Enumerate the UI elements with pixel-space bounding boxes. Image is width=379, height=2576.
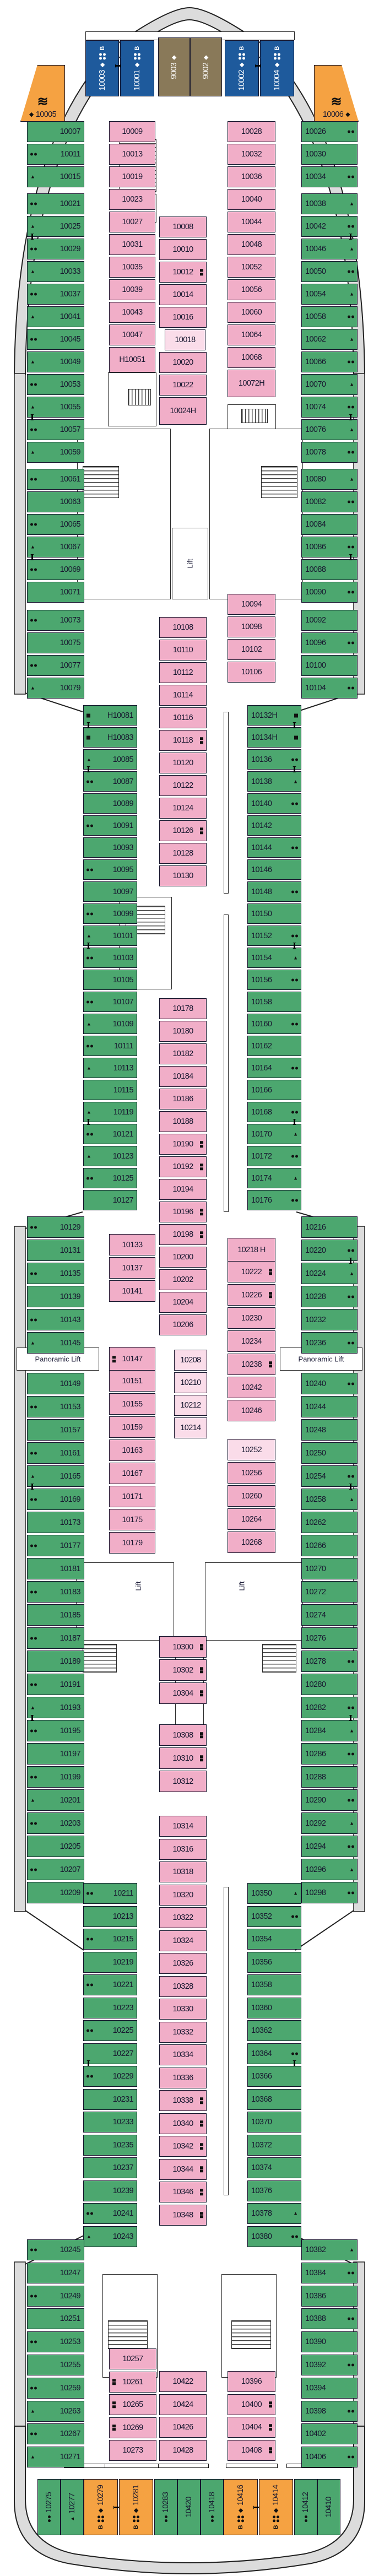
cabin-rotated-content: 10002◆B — [237, 46, 246, 91]
cabin-number: 10302 — [160, 1660, 206, 1680]
cabin-number: 9003 — [170, 62, 178, 79]
extra-berths-icon — [348, 591, 354, 594]
cabin-number: 10214 — [175, 1418, 207, 1438]
cabin-number: 10165 — [28, 1466, 84, 1486]
cabin-10109: 10109▲ — [83, 1014, 137, 1034]
cabin-10192: 10192 — [159, 1156, 207, 1177]
sofa-bed-icon: ▲ — [86, 757, 91, 762]
lift-label: Lift — [134, 1581, 143, 1590]
service-room — [77, 429, 171, 599]
cabin-symbols — [200, 2189, 203, 2195]
cabin-10209: 10209 — [27, 1882, 84, 1903]
cabin-10205: 10205 — [27, 1836, 84, 1857]
cabin-10288: 10288 — [301, 1766, 358, 1788]
cabin-10061: 10061 — [27, 469, 84, 490]
cabin-10178: 10178 — [159, 998, 207, 1019]
cabin-number: 10175 — [110, 1509, 155, 1530]
cabin-symbols — [348, 1845, 354, 1848]
diamond-icon: ◆ — [99, 63, 105, 67]
extra-berths-icon — [30, 569, 37, 571]
cabin-symbols — [200, 827, 203, 834]
cabin-10082: 10082 — [301, 491, 358, 512]
cabin-number: 10048 — [228, 235, 275, 255]
cabin-number: 10055 — [28, 397, 84, 417]
extra-berths-icon — [348, 361, 354, 364]
cabin-symbols — [30, 1226, 37, 1229]
cabin-symbols — [348, 1799, 354, 1801]
cabin-10216: 10216 — [301, 1216, 358, 1238]
accessible-cabin-icon — [86, 713, 90, 717]
cabin-symbols — [86, 1892, 93, 1895]
cabin-number: H10083 — [84, 728, 137, 747]
cabin-symbols — [200, 2143, 203, 2150]
extra-berths-icon — [348, 2271, 354, 2274]
cabin-number: 10030 — [302, 144, 357, 164]
cabin-10236: 10236 — [301, 1332, 358, 1354]
bunk-beds-icon — [200, 2189, 203, 2195]
cabin-number: 10044 — [228, 212, 275, 232]
cabin-number: 10112 — [160, 663, 206, 683]
cabin-rotated-content: 9002◆ — [202, 55, 210, 79]
cabin-symbols — [294, 735, 298, 739]
cabin-symbols: ▲ — [86, 1110, 91, 1114]
cabin-H10083: H10083 — [83, 727, 137, 748]
cabin-symbols — [348, 131, 354, 133]
sofa-bed-icon: ▲ — [349, 477, 354, 482]
cabin-10089: 10089 — [83, 793, 137, 814]
cabin-10022: 10022 — [159, 375, 207, 396]
cabin-10218H: 10218 H — [228, 1238, 275, 1262]
cabin-symbols: ▲ — [293, 1176, 298, 1181]
cabin-number: 10052 — [228, 257, 275, 277]
cabin-10103: 10103 — [83, 948, 137, 968]
cabin-10334: 10334 — [159, 2044, 207, 2065]
cabin-10281: B◆10281 — [119, 2479, 153, 2535]
cabin-10155: 10155 — [109, 1393, 155, 1415]
connecting-cabins-icon: I — [349, 554, 353, 562]
cabin-number: 10089 — [84, 794, 137, 813]
cabin-number: 10216 — [302, 1217, 357, 1237]
cabin-number: 10358 — [248, 1975, 301, 1995]
cabin-symbols — [86, 2075, 93, 2078]
cabin-10183: 10183 — [27, 1581, 84, 1603]
cabin-symbols: ▲ — [30, 2455, 35, 2460]
cabin-number: 10012 — [160, 262, 206, 282]
cabin-number: 10274 — [302, 1605, 357, 1625]
cabin-10170: 10170▲ — [247, 1124, 301, 1144]
cabin-number: 10031 — [110, 235, 155, 255]
cabin-number: 10046 — [302, 239, 357, 259]
cabin-symbols — [200, 1690, 203, 1697]
cabin-number: 10330 — [160, 1999, 206, 2019]
cabin-number: 10119 — [84, 1102, 137, 1122]
sofa-bed-icon: ▲ — [30, 269, 35, 274]
sofa-bed-icon: ▲ — [293, 955, 298, 960]
cabin-10204: 10204 — [159, 1292, 207, 1313]
extra-berths-icon — [348, 406, 354, 409]
cabin-10338: 10338 — [159, 2090, 207, 2111]
cabin-10235: 10235 — [83, 2135, 137, 2156]
cabin-symbols: ▲ — [349, 477, 354, 482]
cabin-H10081: H10081 — [83, 705, 137, 726]
cabin-10200: 10200 — [159, 1247, 207, 1268]
cabin-number: 10010 — [160, 240, 206, 259]
cabin-symbols: ▲ — [30, 175, 35, 180]
cabin-10402: 10402 — [301, 2423, 358, 2444]
cabin-10332: 10332 — [159, 2022, 207, 2043]
cabin-number: 10239 — [84, 2181, 137, 2201]
cabin-10160: 10160 — [247, 1014, 301, 1034]
cabin-number: 10080 — [302, 469, 357, 489]
cabin-symbols — [86, 824, 93, 827]
cabin-10122: 10122 — [159, 775, 207, 796]
extra-berths-icon — [86, 1938, 93, 1941]
cabin-10145: 10145▲ — [27, 1332, 84, 1354]
cabin-number: 10328 — [160, 1977, 206, 1996]
cabin-symbols — [30, 203, 37, 205]
cabin-number: 10150 — [248, 904, 301, 923]
extra-berths-icon — [348, 131, 354, 133]
cabin-10237: 10237 — [83, 2157, 137, 2178]
bunk-beds-icon — [200, 1690, 203, 1697]
extra-berths-icon — [30, 248, 37, 251]
cabin-symbols — [291, 978, 298, 981]
cabin-number: 10252 — [228, 1439, 275, 1460]
cabin-number: 10033 — [28, 262, 84, 282]
cabin-10038: 10038▲ — [301, 193, 358, 214]
cabin-10020: 10020 — [159, 352, 207, 373]
bunk-beds-icon — [200, 2143, 203, 2150]
cabin-number: 10016 — [160, 307, 206, 327]
four-berths-icon — [99, 53, 106, 60]
extra-berths-icon — [348, 1249, 354, 1252]
cabin-rotated-content: 10003◆B — [98, 46, 107, 91]
cabin-number: 10024H — [160, 398, 206, 424]
cabin-symbols — [200, 2212, 203, 2218]
bunk-beds-icon — [200, 2120, 203, 2127]
bunk-beds-icon — [200, 2166, 203, 2173]
cabin-10251: 10251 — [27, 2308, 84, 2329]
cabin-symbols — [86, 1133, 93, 1135]
cabin-number: 10072H — [228, 370, 275, 397]
extra-berths-icon — [348, 451, 354, 454]
cabin-number: 10218 H — [228, 1238, 275, 1262]
cabin-number: 10223 — [84, 1998, 137, 2018]
four-berths-icon — [239, 53, 245, 60]
cabin-number: 10131 — [28, 1240, 84, 1260]
cabin-10066: 10066 — [301, 351, 358, 372]
cabin-symbols — [30, 383, 37, 386]
cabin-10159: 10159 — [109, 1416, 155, 1438]
cabin-10125: 10125 — [83, 1168, 137, 1188]
cabin-10111: 10111 — [83, 1036, 137, 1056]
bunk-beds-icon — [200, 1141, 203, 1148]
cabin-rotated-content: 10001◆B — [133, 46, 142, 91]
cabin-number: 10035 — [110, 257, 155, 277]
sofa-bed-icon: ▲ — [349, 1821, 354, 1826]
cabin-number: 10123 — [84, 1146, 137, 1166]
cabin-number: 10113 — [84, 1058, 137, 1078]
cabin-number: 10300 — [160, 1637, 206, 1657]
cabin-number: 10206 — [160, 1315, 206, 1335]
cabin-symbols — [348, 1341, 354, 1344]
cabin-10245: 10245 — [27, 2239, 84, 2260]
sofa-bed-icon: ▲ — [30, 315, 35, 320]
cabin-number: 10001 — [133, 70, 142, 90]
cabin-10012: 10012 — [159, 262, 207, 283]
cabin-number: 10246 — [228, 1400, 275, 1421]
sofa-bed-icon: ▲ — [70, 2517, 75, 2521]
cabin-10368: 10368 — [247, 2089, 301, 2110]
cabin-symbols: ▲ — [349, 1821, 354, 1826]
cabin-10151: 10151 — [109, 1370, 155, 1392]
cabin-10190: 10190 — [159, 1134, 207, 1155]
cabin-number: 10382 — [302, 2240, 357, 2260]
cabin-10001: 10001◆B — [120, 40, 154, 96]
sofa-bed-icon: ▲ — [293, 1891, 298, 1896]
cabin-10150: 10150 — [247, 903, 301, 924]
cabin-number: H10051 — [110, 348, 155, 372]
cabin-number: 10262 — [302, 1512, 357, 1533]
whirlpool-waves-icon: ≋ — [331, 96, 342, 107]
extra-berths-icon — [30, 1405, 37, 1408]
cabin-number: 10157 — [28, 1420, 84, 1440]
cabin-number: 10025 — [28, 217, 84, 236]
cabin-10276: 10276 — [301, 1627, 358, 1649]
cabin-symbols — [291, 1022, 298, 1025]
cabin-number: 10279 — [96, 2485, 105, 2505]
cabin-10040: 10040 — [228, 189, 275, 210]
whirlpool-waves-icon: ≋ — [37, 96, 48, 107]
cabin-number: 10068 — [228, 348, 275, 367]
cabin-number: 10258 — [302, 1489, 357, 1509]
cabin-number: 10265 — [110, 2395, 156, 2415]
cabin-10199: 10199 — [27, 1766, 84, 1788]
cabin-number-line: 10006◆ — [323, 110, 350, 119]
cabin-10184: 10184 — [159, 1066, 207, 1087]
connecting-cabins-icon: I — [293, 1118, 296, 1127]
cabin-10057: 10057 — [27, 419, 84, 440]
cabin-10269: 10269 — [109, 2417, 156, 2438]
cabin-10374: 10374 — [247, 2157, 301, 2178]
cabin-number: 10084 — [302, 515, 357, 534]
cabin-10143: 10143 — [27, 1309, 84, 1330]
cabin-10294: 10294 — [301, 1836, 358, 1857]
extra-berths-icon — [291, 802, 298, 805]
cabin-symbols — [86, 713, 90, 717]
cabin-symbols: ▲ — [86, 2234, 91, 2239]
cabin-10231: 10231 — [83, 2089, 137, 2110]
cabin-10019: 10019 — [109, 166, 155, 187]
extra-berths-icon — [348, 2318, 354, 2320]
extra-berths-icon — [291, 1022, 298, 1025]
cabin-symbols — [348, 406, 354, 409]
cabin-symbols — [348, 225, 354, 228]
cabin-10326: 10326 — [159, 1953, 207, 1974]
cabin-10263: 10263▲ — [27, 2401, 84, 2422]
cabin-symbols — [200, 2097, 203, 2104]
extra-berths-icon — [348, 1891, 354, 1894]
cabin-number: 10008 — [160, 217, 206, 237]
cabin-10182: 10182 — [159, 1043, 207, 1064]
cabin-number: 10027 — [110, 212, 155, 232]
cabin-10232: 10232 — [301, 1309, 358, 1330]
cabin-number: 10079 — [28, 678, 84, 698]
cabin-10324: 10324 — [159, 1930, 207, 1951]
cabin-number: 10145 — [28, 1333, 84, 1353]
cabin-10268: 10268 — [228, 1531, 275, 1553]
cabin-10376: 10376 — [247, 2180, 301, 2201]
cabin-symbols — [348, 687, 354, 690]
cabin-number: 10137 — [110, 1258, 155, 1278]
extra-berths-icon — [348, 2456, 354, 2459]
cabin-number: 10270 — [302, 1558, 357, 1579]
cabin-10210: 10210 — [174, 1372, 207, 1393]
sofa-bed-icon: ▲ — [349, 1497, 354, 1502]
bunk-beds-icon — [200, 1231, 203, 1238]
cabin-number: 10275 — [45, 2492, 53, 2513]
accessible-cabin-icon — [294, 735, 298, 739]
extra-berths-icon — [348, 1382, 354, 1385]
sofa-bed-icon: ▲ — [30, 360, 35, 365]
extra-berths-icon — [291, 1199, 298, 1202]
four-berths-icon — [98, 2515, 104, 2522]
balcony-grade-letter: B — [98, 2525, 104, 2529]
cabin-10085: 10085▲ — [83, 749, 137, 770]
cabin-10290: 10290 — [301, 1789, 358, 1811]
cabin-number: 10158 — [248, 992, 301, 1011]
cabin-10080: 10080▲ — [301, 469, 358, 490]
cabin-10312: 10312 — [159, 1771, 207, 1792]
sofa-bed-icon: ▲ — [349, 427, 354, 432]
cabin-10238: 10238 — [228, 1354, 275, 1375]
extra-berths-icon — [348, 1341, 354, 1344]
cabin-10119: 10119▲ — [83, 1102, 137, 1122]
cabin-number: 10115 — [84, 1080, 137, 1100]
cabin-9002: 9002◆ — [190, 37, 222, 96]
cabin-10004: 10004◆B — [260, 40, 294, 96]
cabin-10023: 10023 — [109, 189, 155, 210]
cabin-10146: 10146 — [247, 859, 301, 880]
cabin-number: 10334 — [160, 2045, 206, 2065]
cabin-number: 10386 — [302, 2286, 357, 2306]
cabin-number: 10231 — [84, 2090, 137, 2109]
extra-berths-icon — [291, 846, 298, 849]
cabin-number: 10185 — [28, 1605, 84, 1625]
cabin-10172: 10172 — [247, 1146, 301, 1166]
cabin-symbols — [348, 2318, 354, 2320]
cabin-10072H: 10072H — [228, 370, 275, 397]
extra-berths-icon — [86, 2212, 93, 2215]
cabin-number: 10310 — [160, 1748, 206, 1768]
cabin-10162: 10162 — [247, 1036, 301, 1056]
cabin-symbols — [291, 1155, 298, 1157]
cabin-symbols: ▲ — [293, 779, 298, 784]
sofa-bed-icon: ▲ — [349, 2248, 354, 2253]
cabin-number: 10292 — [302, 1813, 357, 1833]
cabin-symbols: ▲ — [293, 955, 298, 960]
cabin-10157: 10157 — [27, 1419, 84, 1441]
cabin-10110: 10110 — [159, 640, 207, 661]
cabin-number: 10314 — [160, 1816, 206, 1836]
cabin-symbols: ▲ — [293, 2211, 298, 2216]
cabin-10314: 10314 — [159, 1816, 207, 1837]
cabin-number: 10127 — [84, 1190, 137, 1210]
cabin-10013: 10013 — [109, 144, 155, 165]
cabin-number: 10242 — [228, 1377, 275, 1398]
extra-berths-icon — [86, 1133, 93, 1135]
cabin-symbols — [30, 1683, 37, 1686]
cabin-symbols — [86, 1177, 93, 1179]
cabin-10175: 10175 — [109, 1509, 155, 1530]
extra-berths-icon — [211, 2515, 214, 2522]
cabin-10128: 10128 — [159, 843, 207, 864]
extra-berths-icon — [291, 1915, 298, 1918]
cabin-10069: 10069 — [27, 559, 84, 580]
extra-berths-icon — [348, 642, 354, 645]
cabin-symbols — [30, 1729, 37, 1732]
extra-berths-icon — [291, 1155, 298, 1157]
cabin-number: 10346 — [160, 2182, 206, 2202]
cabin-number: 10071 — [28, 582, 84, 602]
cabin-number: 10039 — [110, 280, 155, 300]
cabin-number: 10159 — [110, 1417, 155, 1437]
cabin-10068: 10068 — [228, 347, 275, 368]
cabin-10102: 10102 — [228, 639, 275, 660]
cabin-symbols: ▲ — [30, 686, 35, 691]
extra-berths-icon — [30, 1318, 37, 1321]
cabin-number: 10414 — [272, 2485, 280, 2505]
sofa-bed-icon: ▲ — [30, 1340, 35, 1345]
bunk-beds-icon — [200, 1163, 203, 1170]
cabin-symbols — [348, 546, 354, 549]
cabin-number: 10226 — [228, 1285, 275, 1305]
lift-label: Lift — [186, 559, 194, 568]
service-room — [209, 429, 303, 599]
cabin-symbols — [348, 642, 354, 645]
diamond-icon: ◆ — [134, 63, 140, 67]
cabin-10258: 10258▲ — [301, 1489, 358, 1510]
cabin-10229: 10229 — [83, 2066, 137, 2087]
balcony-grade-letter: B — [133, 2525, 139, 2529]
cabin-number: 10146 — [248, 860, 301, 879]
cabin-symbols — [348, 176, 354, 178]
cabin-10029: 10029 — [27, 239, 84, 259]
extra-berths-icon — [86, 1045, 93, 1047]
extra-berths-icon — [30, 1822, 37, 1825]
bunk-beds-icon — [269, 2401, 272, 2408]
cabin-10283: 10283 — [154, 2479, 177, 2535]
cabin-10380: 10380 — [247, 2226, 301, 2247]
cabin-number: 10181 — [28, 1558, 84, 1579]
cabin-10267: 10267 — [27, 2423, 84, 2444]
sofa-bed-icon: ▲ — [293, 1132, 298, 1137]
cabin-10063: 10063 — [27, 491, 84, 512]
cabin-number: 10179 — [110, 1533, 155, 1553]
cabin-10284: 10284▲ — [301, 1720, 358, 1741]
cabin-number: 10273 — [110, 2440, 156, 2460]
cabin-symbols — [200, 1732, 203, 1739]
cabin-number: 10040 — [228, 190, 275, 209]
cabin-10107: 10107 — [83, 992, 137, 1012]
extra-berths-icon — [30, 1498, 37, 1501]
cabin-10131: 10131 — [27, 1240, 84, 1261]
cabin-10222: 10222 — [228, 1261, 275, 1282]
cabin-number: 10101 — [84, 926, 137, 945]
cabin-10113: 10113▲ — [83, 1058, 137, 1078]
balcony-grade-letter: B — [134, 46, 140, 51]
cabin-number: 10340 — [160, 2114, 206, 2134]
